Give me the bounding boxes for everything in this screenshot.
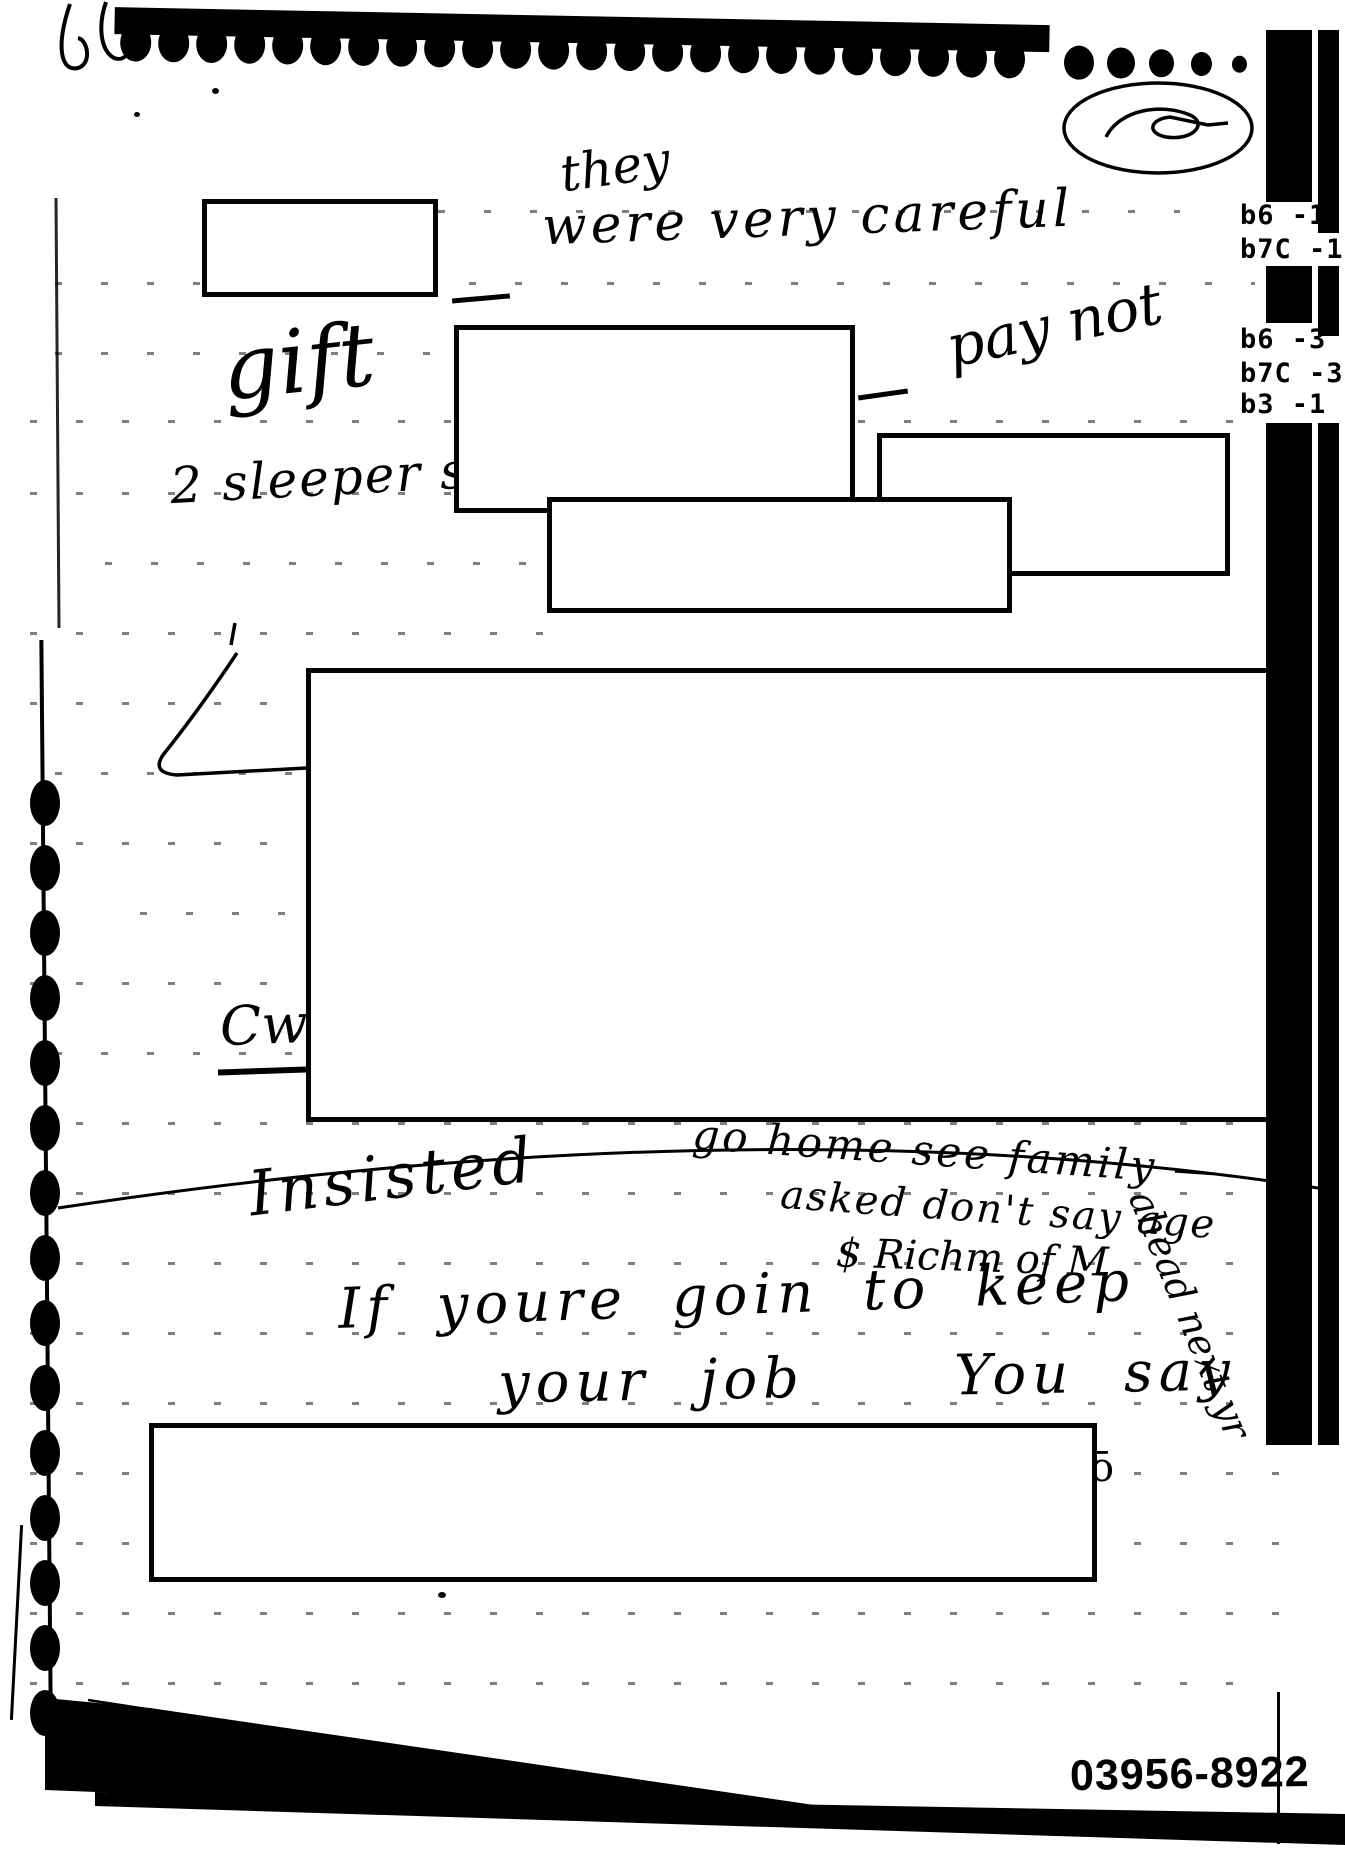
binder-hole-shadow (30, 1430, 60, 1476)
perforation-strip (53, 0, 1315, 119)
handwriting-if-line2: your job You say (498, 1344, 1237, 1413)
binder-hole-shadow (30, 1625, 60, 1671)
wire-hook-scribble (48, 0, 143, 85)
ruled-line (105, 562, 555, 565)
bottom-edge-artifacts (0, 1680, 1345, 1850)
exemption-code-b3-1: b3 -1 (1240, 389, 1326, 420)
scan-bar-narrow (1318, 423, 1339, 1445)
left-edge-line (54, 198, 60, 628)
redaction-box-1 (202, 199, 438, 297)
redaction-box-4 (547, 497, 1012, 613)
scan-bar-wide (1266, 266, 1312, 323)
exemption-code-b6-1: b6 -1 (1240, 200, 1326, 231)
exemption-code-b7c-3: b7C -3 (1240, 358, 1344, 389)
speck (134, 112, 140, 117)
binder-hole-shadow (30, 1365, 60, 1411)
binder-hole-shadow (30, 1560, 60, 1606)
binder-hole-shadow (30, 910, 60, 956)
exemption-code-b6-3: b6 -3 (1240, 324, 1326, 355)
exemption-code-b7c-1: b7C -1 (1240, 234, 1344, 265)
ruled-line (30, 1612, 1280, 1615)
curved-pointer-stroke (135, 615, 320, 790)
dash-stroke (452, 293, 510, 303)
binder-hole-shadow (30, 1040, 60, 1086)
redaction-box-6 (149, 1423, 1097, 1582)
binder-hole-shadow (30, 1495, 60, 1541)
binder-hole-shadow (30, 975, 60, 1021)
handwriting-they: they (557, 135, 673, 200)
handwriting-gift: gift (218, 310, 379, 413)
scanned-notebook-page: b6 -1 b7C -1 b6 -3 b7C -3 b3 -1 Cwe 2 sl… (0, 0, 1345, 1850)
handwriting-o-macron: ō (1090, 1448, 1114, 1488)
speck (438, 1592, 446, 1598)
binder-hole-shadow (30, 780, 60, 826)
binder-hole-shadow (30, 845, 60, 891)
redaction-box-5 (306, 668, 1280, 1122)
perforation-dot (1107, 47, 1136, 79)
ruled-line (30, 1332, 1280, 1335)
dash-stroke (858, 389, 908, 401)
perforation-dot (1149, 49, 1175, 77)
redaction-box-2 (454, 325, 855, 513)
handwriting-pay-not: pay not (941, 274, 1167, 376)
perforation-dot (1191, 52, 1212, 76)
perforation-dot (1064, 45, 1095, 80)
cure-underline (218, 1066, 306, 1075)
scan-bar-wide (1266, 423, 1312, 1445)
perforation-dot (1232, 56, 1247, 73)
binder-hole-shadow (30, 1300, 60, 1346)
